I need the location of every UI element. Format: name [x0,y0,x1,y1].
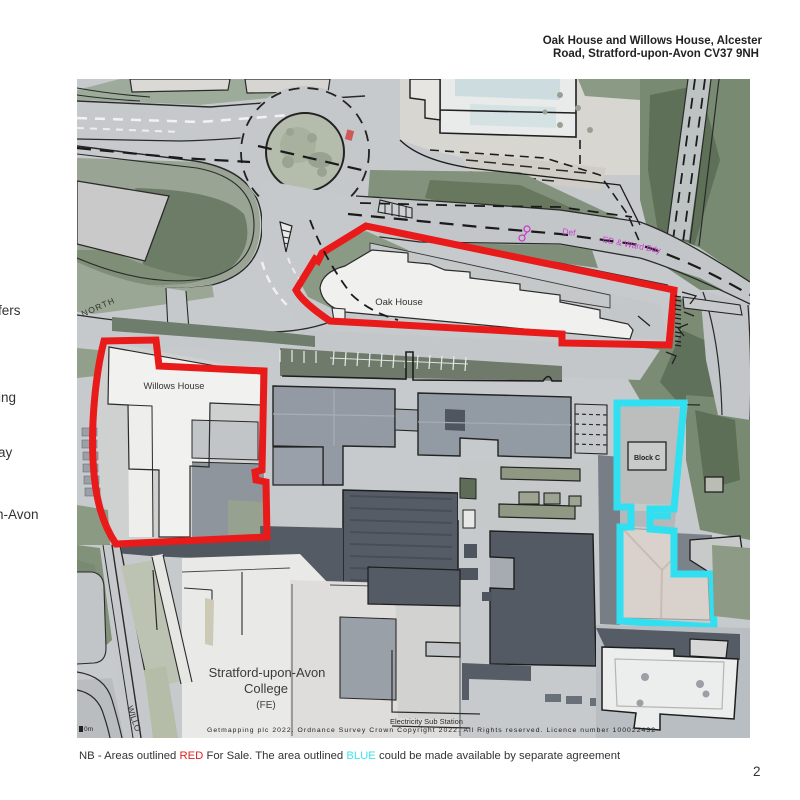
svg-text:NB - Areas outlined RED For Sa: NB - Areas outlined RED For Sale. The ar… [79,750,621,762]
svg-text:(FE): (FE) [256,700,275,711]
svg-text:ing: ing [0,390,16,405]
svg-text:Getmapping plc 2022. Ordnance: Getmapping plc 2022. Ordnance Survey Cro… [207,727,655,734]
svg-text:Block C: Block C [634,455,660,462]
svg-text:fers: fers [0,303,21,318]
svg-text:Oak House: Oak House [375,297,423,308]
svg-text:Oak House and Willows House, A: Oak House and Willows House, Alcester [543,35,763,47]
svg-text:n-Avon: n-Avon [0,507,39,522]
svg-text:Def: Def [562,226,577,238]
svg-text:Electricity Sub Station: Electricity Sub Station [390,717,463,726]
svg-text:0m: 0m [84,726,93,733]
svg-text:Willows House: Willows House [144,381,205,391]
svg-text:ay: ay [0,445,13,460]
svg-text:Road, Stratford-upon-Avon CV37: Road, Stratford-upon-Avon CV37 9NH [553,48,759,60]
svg-text:Stratford-upon-Avon: Stratford-upon-Avon [209,665,326,680]
svg-text:College: College [244,681,288,696]
svg-text:2: 2 [753,764,761,779]
